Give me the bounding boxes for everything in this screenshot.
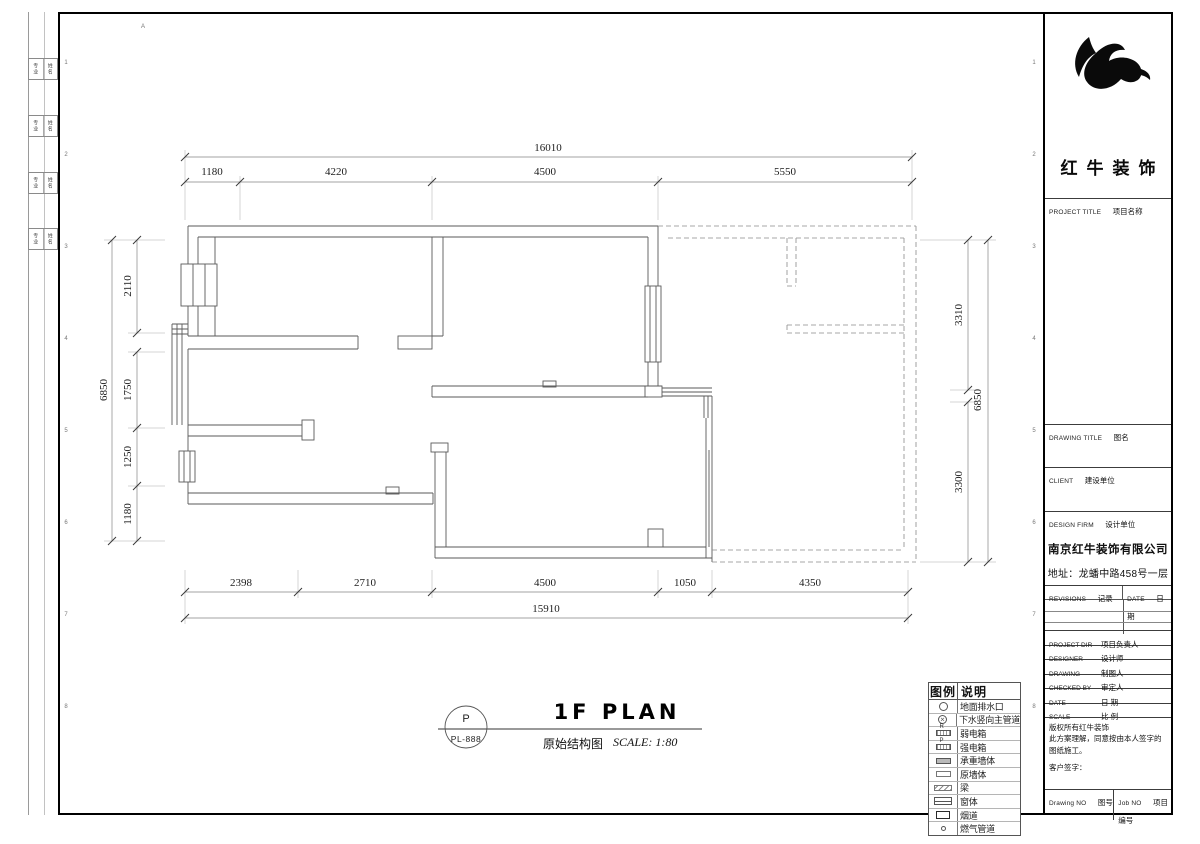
legend-row: 承重墙体 [929,753,1020,767]
legend-item-label: 原墙体 [958,768,1020,781]
grid-ref-row-number: 7 [64,612,67,618]
box-p-icon [929,741,958,754]
circle-x-symbol [938,715,947,724]
plan-title: 1F PLAN [554,700,681,724]
grid-ref-row-number: 3 [1032,244,1035,250]
legend-item-label: 窗体 [958,795,1020,808]
legend-item-label: 强电箱 [958,741,1020,754]
client-signature-label: 客户签字： [1049,762,1167,773]
drawing-title-label-en: DRAWING TITLE [1049,435,1102,442]
grid-ref-row-number: 3 [64,244,67,250]
dim-right-total: 6850 [972,389,984,411]
signature-strip-box: 专业姓名 [28,115,58,137]
legend-item-label: 地面排水口 [958,700,1020,713]
project-title-label-cn: 项目名称 [1113,207,1143,216]
grid-ref-row-number: 4 [1032,336,1035,342]
legend-row: 烟道 [929,808,1020,822]
legend-row: 燃气管道 [929,821,1020,835]
box-solid-symbol [936,758,951,764]
personnel-label-cn: 设计师 [1101,654,1124,663]
grid-ref-row-number: 7 [1032,612,1035,618]
drawing-no-label-cn: 图号 [1098,798,1113,807]
grid-ref-top-letter: A [141,24,145,30]
personnel-label-en: CHECKED BY [1049,685,1101,692]
personnel-row: PROJECT DIR项目负责人 [1045,630,1171,645]
legend-item-label: 燃气管道 [958,822,1020,835]
legend-row: 窗体 [929,794,1020,808]
grid-ref-row-number: 4 [64,336,67,342]
drawing-title-section: DRAWING TITLE 图名 [1045,424,1171,467]
client-label-en: CLIENT [1049,478,1073,485]
dim-left-4: 1180 [122,503,134,525]
dim-top-4: 5550 [774,166,796,178]
box-empty-icon [929,768,958,781]
dim-bottom-4: 1050 [674,577,696,589]
job-no-label-en: Job NO [1118,800,1141,807]
dim-bottom-1: 2398 [230,577,252,589]
dim-top-2: 4220 [325,166,347,178]
revisions-header: REVISIONS 记录 DATE 日期 [1045,586,1171,600]
box-lines-symbol [934,797,952,805]
signature-strip-cell: 专业 [29,173,44,193]
design-firm-label-en: DESIGN FIRM [1049,522,1094,529]
signature-strip-cell: 姓名 [44,59,58,79]
signature-strip-box: 专业姓名 [28,58,58,80]
company-name: 红牛装饰 [1052,154,1165,179]
legend-header: 图例 说明 [929,683,1020,700]
bull-logo-icon [1056,32,1160,110]
dim-left-1: 2110 [122,275,134,297]
drawing-title-label-cn: 图名 [1114,433,1129,442]
dim-bottom-3: 4500 [534,577,556,589]
circle-symbol [939,702,948,711]
title-block: 红牛装饰 PROJECT TITLE 项目名称 DRAWING TITLE 图名… [1043,12,1173,815]
grid-ref-row-number: 2 [1032,152,1035,158]
revision-row-empty [1045,600,1171,612]
company-logo-area: 红牛装饰 [1045,14,1171,198]
box-lines-icon [929,795,958,808]
legend-row: 强电箱 [929,740,1020,754]
dim-bottom-5: 4350 [799,577,821,589]
box-r-symbol [936,730,951,736]
plan-bubble-number: PL-888 [451,734,481,744]
revisions-section: REVISIONS 记录 DATE 日期 [1045,585,1171,630]
dim-left-3: 1250 [122,446,134,468]
legend-row: 梁 [929,781,1020,795]
legend-header-symbol: 图例 [929,683,958,699]
legend-item-label: 承重墙体 [958,754,1020,767]
legend-item-label: 梁 [958,781,1020,794]
box-p-symbol [936,744,951,750]
copyright-line1: 版权所有红牛装饰 [1049,722,1167,733]
legend-header-label: 说明 [958,683,1020,700]
number-section: Drawing NO 图号 Job NO 项目编号 [1045,789,1171,817]
drawing-no-label-en: Drawing NO [1049,800,1086,807]
box-hatch-icon [929,782,958,795]
dim-left-total: 6850 [98,379,110,401]
dim-top-3: 4500 [534,166,556,178]
plan-bubble-letter: P [462,713,469,725]
design-firm-section: DESIGN FIRM 设计单位 南京红牛装饰有限公司 地址：龙蟠中路458号一… [1045,511,1171,585]
grid-ref-row-number: 8 [1032,704,1035,710]
plan-subtitle: 原始结构图 [543,735,603,752]
grid-ref-row-number: 6 [1032,520,1035,526]
grid-ref-row-number: 1 [1032,60,1035,66]
project-title-section: PROJECT TITLE 项目名称 [1045,198,1171,424]
revision-row-empty [1045,612,1171,624]
dim-left-2: 1750 [122,379,134,401]
legend-row: 原墙体 [929,767,1020,781]
dim-right-2: 3300 [953,471,965,493]
grid-ref-row-number: 6 [64,520,67,526]
copyright-section: 版权所有红牛装饰 此方案理解，同意按由本人签字的图纸施工。 客户签字： [1045,717,1171,789]
legend-table: 图例 说明 地面排水口下水竖向主管道弱电箱强电箱承重墙体原墙体梁窗体烟道燃气管道 [928,682,1021,836]
design-firm-address: 地址：龙蟠中路458号一层 [1045,565,1171,580]
circle-icon [929,700,958,713]
box-bold-icon [929,809,958,822]
design-firm-name: 南京红牛装饰有限公司 [1045,541,1171,557]
personnel-label-en: DESIGNER [1049,656,1101,663]
personnel-rows: PROJECT DIR项目负责人DESIGNER设计师DRAWING制图人CHE… [1045,630,1171,717]
plan-scale: SCALE: 1:80 [613,735,677,750]
copyright-line2: 此方案理解，同意按由本人签字的图纸施工。 [1049,733,1167,756]
dim-top-1: 1180 [201,166,223,178]
client-section: CLIENT 建设单位 [1045,467,1171,511]
dot-symbol [941,826,946,831]
box-hatch-symbol [934,785,952,791]
grid-ref-row-number: 2 [64,152,67,158]
signature-strip-cell: 专业 [29,59,44,79]
grid-ref-row-number: 8 [64,704,67,710]
legend-row: 地面排水口 [929,700,1020,713]
client-label-cn: 建设单位 [1085,476,1115,485]
grid-ref-row-number: 1 [64,60,67,66]
personnel-label-cn: 审定人 [1101,683,1124,692]
design-firm-label-cn: 设计单位 [1105,520,1135,529]
signature-strip-box: 专业姓名 [28,228,58,250]
box-bold-symbol [936,811,950,819]
signature-strip-cell: 专业 [29,229,44,249]
legend-item-label: 下水竖向主管道 [957,713,1020,726]
drawing-sheet: 专业姓名专业姓名专业姓名专业姓名 A 1122334455667788 1601… [0,0,1200,844]
grid-ref-row-number: 5 [64,428,67,434]
dim-top-total: 16010 [534,142,562,154]
project-title-label-en: PROJECT TITLE [1049,209,1101,216]
legend-item-label: 弱电箱 [958,727,1020,740]
dim-bottom-2: 2710 [354,577,376,589]
legend-item-label: 烟道 [958,809,1020,822]
dim-bottom-total: 15910 [532,603,560,615]
dot-icon [929,822,958,835]
grid-ref-row-number: 5 [1032,428,1035,434]
signature-strip-cell: 姓名 [44,229,58,249]
signature-strip-box: 专业姓名 [28,172,58,194]
box-empty-symbol [936,771,951,777]
signature-strip-cell: 姓名 [44,173,58,193]
box-solid-icon [929,754,958,767]
signature-strip-cell: 专业 [29,116,44,136]
dim-right-1: 3310 [953,304,965,326]
signature-strip-cell: 姓名 [44,116,58,136]
